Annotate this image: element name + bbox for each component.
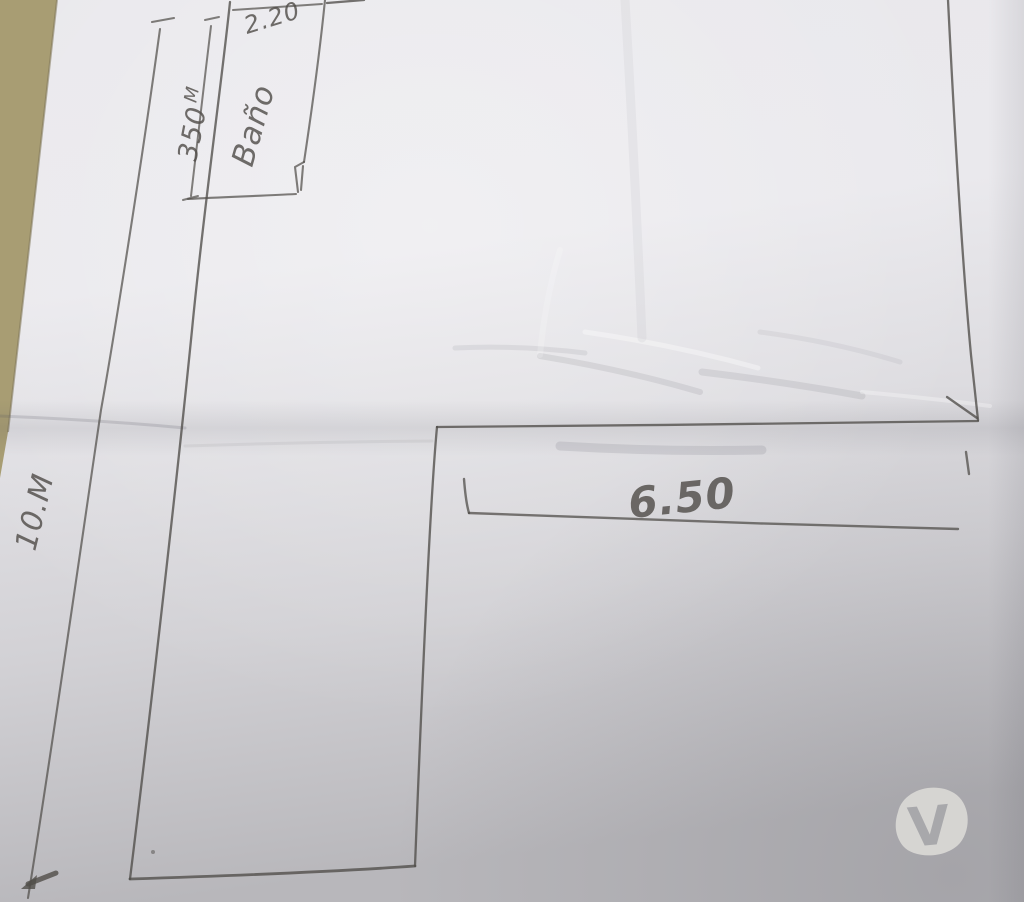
sketch-canvas: 2.20 350M Baño 10.M 6.50 V xyxy=(0,0,1024,902)
floor-plan-sketch-photo: 2.20 350M Baño 10.M 6.50 V xyxy=(0,0,1024,902)
pencil-speck xyxy=(151,850,155,854)
fold-shadow-under-wall xyxy=(560,446,762,451)
watermark-letter: V xyxy=(906,793,953,859)
main-fold-band xyxy=(0,400,1024,456)
